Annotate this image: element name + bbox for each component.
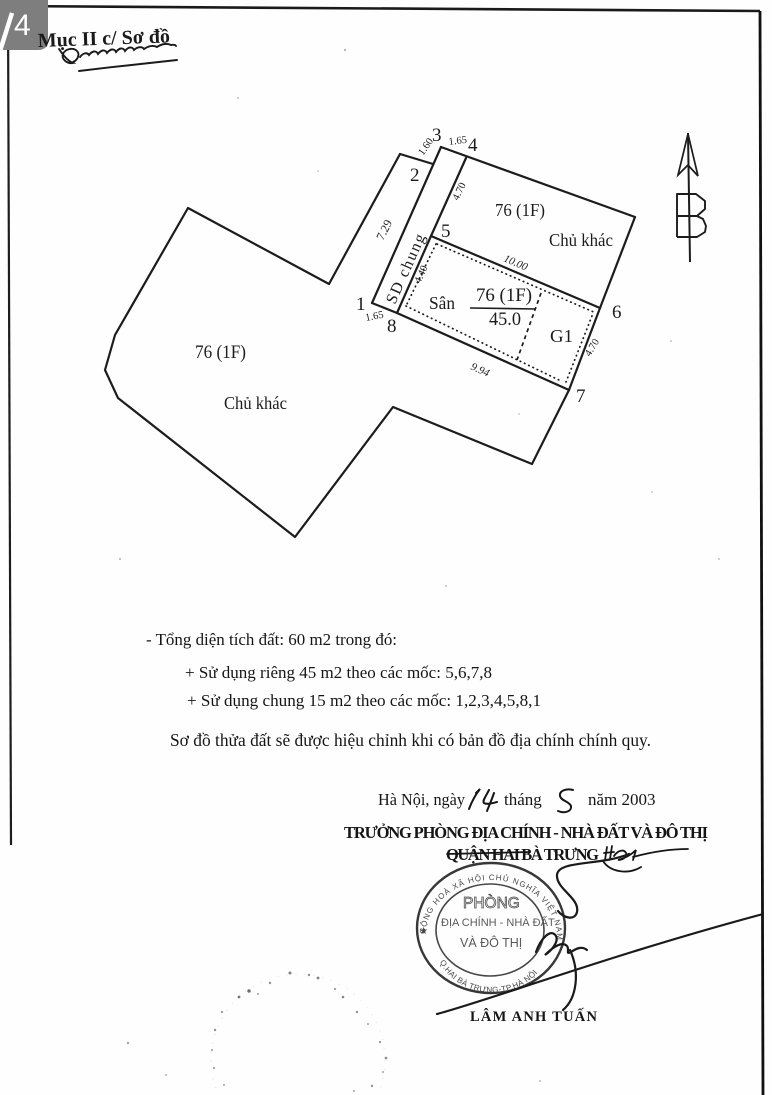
svg-text:76 (1F): 76 (1F) (476, 285, 532, 306)
svg-text:LÂM ANH TUẤN: LÂM ANH TUẤN (470, 1008, 598, 1025)
svg-text:tháng: tháng (504, 790, 542, 809)
svg-text:7: 7 (576, 386, 586, 407)
svg-text:2: 2 (410, 165, 420, 186)
svg-text:1.65: 1.65 (448, 135, 468, 148)
svg-text:PHÒNG: PHÒNG (463, 895, 520, 912)
svg-text:4: 4 (468, 135, 478, 156)
svg-text:ĐỊA CHÍNH - NHÀ ĐẤT: ĐỊA CHÍNH - NHÀ ĐẤT (441, 916, 555, 929)
svg-text:Sân: Sân (429, 293, 455, 313)
svg-text:TRƯỞNG PHÒNG ĐỊA CHÍNH - NHÀ Đ: TRƯỞNG PHÒNG ĐỊA CHÍNH - NHÀ ĐẤT VÀ ĐÔ T… (344, 823, 708, 842)
svg-text:Hà Nội, ngày: Hà Nội, ngày (378, 790, 465, 809)
svg-text:8: 8 (387, 316, 397, 337)
svg-text:- Tổng diện tích đất: 60 m2 tr: - Tổng diện tích đất: 60 m2 trong đó: (146, 630, 397, 649)
svg-text:5: 5 (441, 221, 451, 242)
svg-text:Chủ khác: Chủ khác (224, 393, 287, 413)
svg-text:76 (1F): 76 (1F) (495, 200, 545, 221)
svg-text:45.0: 45.0 (489, 310, 521, 330)
svg-text:năm 2003: năm 2003 (588, 790, 656, 809)
svg-text:VÀ ĐÔ THỊ: VÀ ĐÔ THỊ (460, 935, 522, 950)
svg-text:76 (1F): 76 (1F) (195, 343, 246, 363)
svg-text:4: 4 (14, 9, 31, 42)
svg-text:★: ★ (419, 926, 428, 937)
svg-text:Chủ khác: Chủ khác (549, 230, 613, 250)
svg-text:Sơ đồ thửa đất sẽ được hiệu ch: Sơ đồ thửa đất sẽ được hiệu chỉnh khi có… (170, 730, 651, 750)
svg-text:1: 1 (356, 294, 366, 315)
svg-text:+ Sử dụng riêng 45 m2 theo các: + Sử dụng riêng 45 m2 theo các mốc: 5,6,… (185, 663, 492, 682)
svg-text:Mục II c/ Sơ đồ: Mục II c/ Sơ đồ (37, 25, 170, 52)
svg-text:6: 6 (612, 302, 622, 323)
svg-text:QUẬN HAI BÀ TRƯNG: QUẬN HAI BÀ TRƯNG (446, 845, 599, 864)
svg-text:+ Sử dụng chung 15 m2 theo các: + Sử dụng chung 15 m2 theo các mốc: 1,2,… (187, 691, 541, 710)
svg-text:G1: G1 (550, 326, 573, 346)
